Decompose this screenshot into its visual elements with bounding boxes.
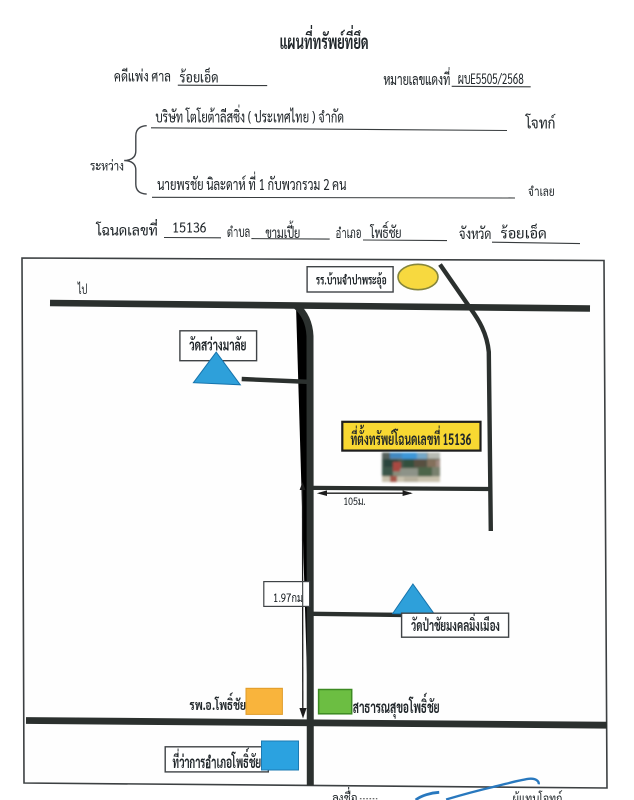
svg-text:อำเภอ: อำเภอ <box>336 224 362 242</box>
svg-text:จำเลย: จำเลย <box>528 183 555 200</box>
svg-text:รพ.อ.โพธิ์ชัย: รพ.อ.โพธิ์ชัย <box>190 692 247 714</box>
svg-text:วัดป่าชัยมงคลมิ่งเมือง: วัดป่าชัยมงคลมิ่งเมือง <box>411 613 500 635</box>
svg-text:ร้อยเอ็ด: ร้อยเอ็ด <box>180 67 219 87</box>
svg-text:โฉนดเลขที่: โฉนดเลขที่ <box>95 219 158 240</box>
svg-text:ลงชื่อ: ลงชื่อ <box>332 787 357 800</box>
svg-text:ที่ว่าการอำเภอโพธิ์ชัย: ที่ว่าการอำเภอโพธิ์ชัย <box>172 747 261 772</box>
svg-text:จังหวัด: จังหวัด <box>459 225 491 243</box>
svg-text:ที่ตั้งทรัพย์โฉนดเลขที่ 15136: ที่ตั้งทรัพย์โฉนดเลขที่ 15136 <box>350 426 471 449</box>
svg-text:ขามเปี้ย: ขามเปี้ย <box>265 221 300 242</box>
svg-text:1.97กม: 1.97กม <box>273 589 303 605</box>
svg-text:สาธารณสุขอโพธิ์ชัย: สาธารณสุขอโพธิ์ชัย <box>353 693 440 719</box>
svg-text:ผู้แทนโจทก์: ผู้แทนโจทก์ <box>512 789 563 800</box>
svg-text:นายพรชัย นิละดาห์ ที่ 1 กับพวก: นายพรชัย นิละดาห์ ที่ 1 กับพวกรวม 2 คน <box>157 171 347 194</box>
svg-text:แผนที่ทรัพย์ที่ยึด: แผนที่ทรัพย์ที่ยึด <box>280 25 369 54</box>
svg-text:ร้อยเอ็ด: ร้อยเอ็ด <box>501 225 547 243</box>
svg-text:โจทก์: โจทก์ <box>525 113 556 133</box>
svg-text:คดีแพ่ง ศาล: คดีแพ่ง ศาล <box>114 67 171 86</box>
svg-text:ระหว่าง: ระหว่าง <box>90 158 124 174</box>
svg-text:โพธิ์ชัย: โพธิ์ชัย <box>369 221 401 242</box>
svg-text:15136: 15136 <box>172 219 207 237</box>
svg-text:หมายเลขแดงที่: หมายเลขแดงที่ <box>383 67 450 89</box>
svg-text:ผบE5505/2568: ผบE5505/2568 <box>458 69 524 88</box>
svg-text:รร.บ้านจำปาพระอุ้อ: รร.บ้านจำปาพระอุ้อ <box>316 271 387 290</box>
svg-text:105ม.: 105ม. <box>343 495 366 508</box>
svg-text:วัดสว่างมาลัย: วัดสว่างมาลัย <box>189 336 247 355</box>
svg-text:ตำบล: ตำบล <box>227 223 251 241</box>
svg-text:ไป: ไป <box>77 281 87 298</box>
svg-text:บริษัท โตโยต้าลีสซิ่ง ( ประเทศ: บริษัท โตโยต้าลีสซิ่ง ( ประเทศไทย ) จำกั… <box>155 104 344 126</box>
